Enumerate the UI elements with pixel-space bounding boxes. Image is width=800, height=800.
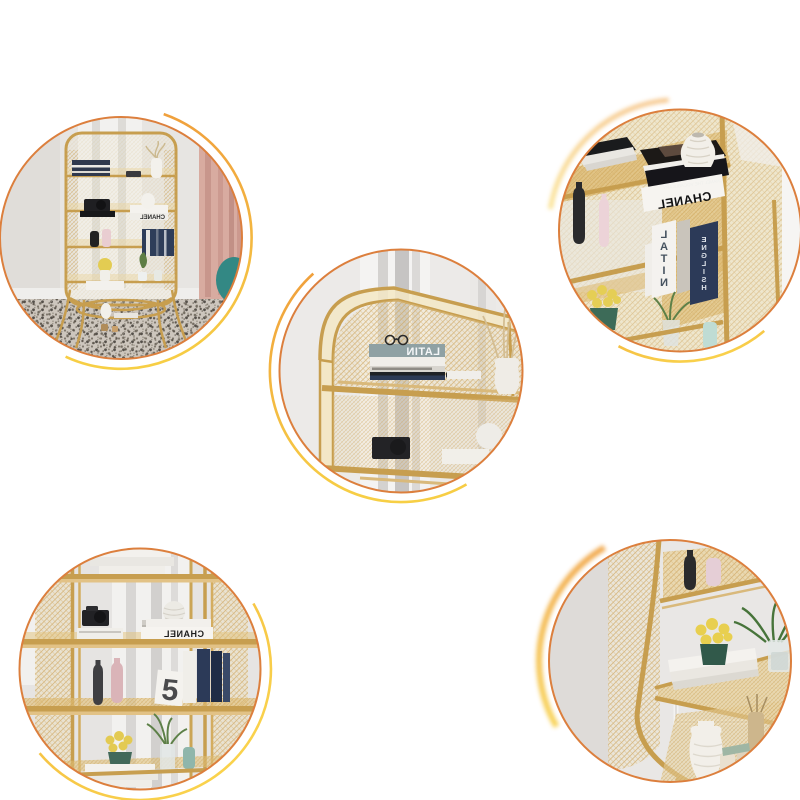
svg-text:CHANEL: CHANEL [163, 629, 204, 639]
svg-text:LATIN: LATIN [660, 229, 668, 289]
svg-text:CHANEL: CHANEL [140, 215, 165, 221]
svg-text:LATIN: LATIN [406, 346, 440, 358]
svg-text:ENGLISH: ENGLISH [701, 235, 707, 292]
svg-text:5: 5 [160, 673, 180, 708]
